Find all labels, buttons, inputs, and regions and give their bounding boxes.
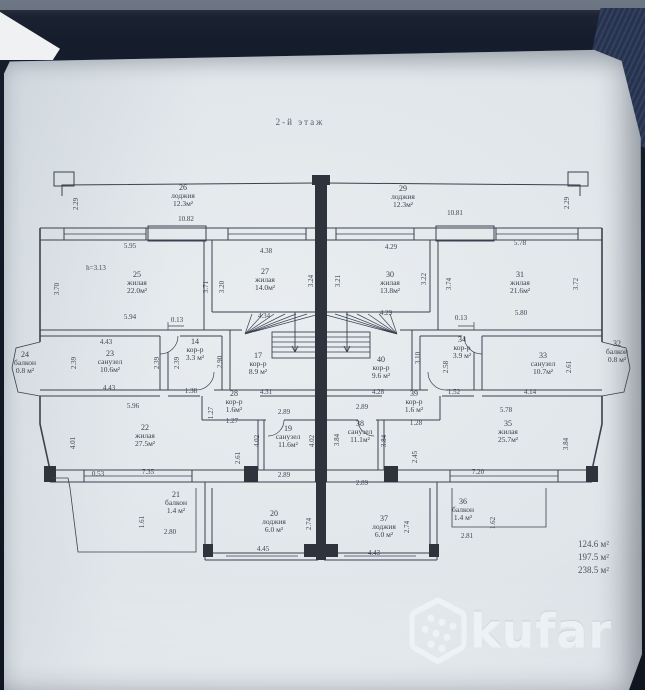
dimension-label: 5.96: [127, 402, 139, 410]
dimension-label: 4.02: [253, 435, 261, 447]
dimension-label: 2.89: [278, 471, 290, 479]
photo-background: 2-й этаж 26лоджия12.3м²29лоджия12.3м²25ж…: [0, 0, 645, 690]
room-area: 12.3м²: [391, 201, 415, 209]
dimension-label: 2.89: [356, 403, 368, 411]
room-label: 31жилая21.6м²: [510, 271, 530, 295]
room-area: 6.0 м²: [372, 531, 396, 539]
dimension-label: 3.10: [414, 352, 422, 364]
room-label: 19санузел11.6м²: [276, 425, 301, 449]
room-area: 22.0м²: [127, 287, 147, 295]
room-area: 1.4 м²: [165, 507, 187, 515]
room-label: 39кор-р1.6 м²: [405, 390, 423, 414]
floor-plan: 2-й этаж 26лоджия12.3м²29лоджия12.3м²25ж…: [0, 0, 645, 690]
dimension-label: 4.38: [260, 247, 272, 255]
dimension-label: 0.53: [92, 470, 104, 478]
dimension-label: 3.84: [380, 435, 388, 447]
total-area-line: 197.5 м²: [578, 551, 609, 564]
dimension-label: 3.74: [445, 278, 453, 290]
room-label: 34кор-р3.9 м²: [453, 336, 471, 360]
dimension-label: 2.89: [278, 408, 290, 416]
room-area: 12.3м²: [171, 200, 195, 208]
dimension-label: 2.80: [164, 528, 176, 536]
dimension-label: 4.29: [385, 243, 397, 251]
dimension-label: 7.35: [142, 468, 154, 476]
dimension-label: 4.28: [372, 388, 384, 396]
room-area: 21.6м²: [510, 287, 530, 295]
room-label: 24балкон0.8 м²: [14, 351, 36, 375]
dimension-label: 2.39: [173, 357, 181, 369]
dimension-label: 1.38: [185, 387, 197, 395]
floor-plan-walls: [0, 0, 645, 690]
dimension-label: 2.29: [72, 198, 80, 210]
dimension-label: 5.95: [124, 242, 136, 250]
room-area: 1.6 м²: [405, 406, 423, 414]
dimension-label: 2.89: [356, 479, 368, 487]
dimension-label: 1.27: [207, 407, 215, 419]
room-area: 11.1м²: [348, 436, 373, 444]
room-area: 9.6 м²: [372, 372, 390, 380]
room-label: 35жилая25.7м²: [498, 420, 518, 444]
dimension-label: 2.81: [461, 532, 473, 540]
dimension-label: 2.61: [565, 361, 573, 373]
dimension-label: 3.84: [333, 434, 341, 446]
dimension-label: 2.61: [234, 452, 242, 464]
dimension-label: 5.94: [124, 313, 136, 321]
room-label: 23санузел10.6м²: [98, 350, 123, 374]
room-area: 13.8м²: [380, 287, 400, 295]
room-area: 10.7м²: [531, 368, 556, 376]
dimension-label: 5.78: [500, 406, 512, 414]
dimension-label: 1.61: [138, 516, 146, 528]
dimension-label: 4.34: [258, 312, 270, 320]
dimension-label: 4.29: [380, 309, 392, 317]
dimension-label: 5.78: [514, 239, 526, 247]
room-area: 10.6м²: [98, 366, 123, 374]
dimension-label: 5.80: [515, 309, 527, 317]
dimension-label: 10.82: [178, 215, 194, 223]
room-label: 29лоджия12.3м²: [391, 185, 415, 209]
room-area: 1.4 м²: [452, 514, 474, 522]
room-label: 38санузел11.1м²: [348, 420, 373, 444]
total-area-line: 238.5 м²: [578, 564, 609, 577]
dimension-label: 4.31: [260, 388, 272, 396]
area-totals: 124.6 м² 197.5 м² 238.5 м²: [578, 538, 609, 577]
room-area: 0.8 м²: [606, 356, 628, 364]
room-label: 20лоджия6.0 м²: [262, 510, 286, 534]
room-area: 1.6м²: [225, 406, 242, 414]
dimension-label: 1.62: [489, 517, 497, 529]
room-label: 27жилая14.0м²: [255, 268, 275, 292]
room-label: 26лоджия12.3м²: [171, 184, 195, 208]
room-label: 37лоджия6.0 м²: [372, 515, 396, 539]
dimension-label: 3.70: [53, 283, 61, 295]
dimension-label: 2.45: [411, 451, 419, 463]
dimension-label: 4.01: [69, 437, 77, 449]
room-area: 3.3 м²: [186, 354, 204, 362]
dimension-label: 4.02: [308, 435, 316, 447]
room-label: 22жилая27.5м²: [135, 424, 155, 448]
room-label: 36балкон1.4 м²: [452, 498, 474, 522]
dimension-label: 4.45: [257, 545, 269, 553]
dimension-label: 10.81: [447, 209, 463, 217]
dimension-label: 3.22: [420, 273, 428, 285]
room-label: 21балкон1.4 м²: [165, 491, 187, 515]
dimension-label: 2.39: [70, 357, 78, 369]
dimension-label: 4.43: [100, 338, 112, 346]
room-area: 14.0м²: [255, 284, 275, 292]
room-area: 6.0 м²: [262, 526, 286, 534]
room-label: 30жилая13.8м²: [380, 271, 400, 295]
total-area-line: 124.6 м²: [578, 538, 609, 551]
room-label: 33санузел10.7м²: [531, 352, 556, 376]
room-area: 27.5м²: [135, 440, 155, 448]
room-label: 25жилая22.0м²: [127, 271, 147, 295]
kufar-wordmark: kufar: [470, 608, 612, 654]
room-area: 25.7м²: [498, 436, 518, 444]
room-label: 14кор-р3.3 м²: [186, 338, 204, 362]
dimension-label: 0.13: [171, 316, 183, 324]
dimension-label: 3.71: [202, 281, 210, 293]
dimension-label: 4.43: [368, 549, 380, 557]
dimension-label: 2.74: [403, 521, 411, 533]
room-label: 40кор-р9.6 м²: [372, 356, 390, 380]
room-area: 3.9 м²: [453, 352, 471, 360]
dimension-label: 7.20: [472, 468, 484, 476]
floor-title: 2-й этаж: [276, 117, 325, 127]
room-area: 8.9 м²: [249, 368, 267, 376]
dimension-label: 3.72: [572, 278, 580, 290]
room-area: 11.6м²: [276, 441, 301, 449]
dimension-label: 2.29: [563, 197, 571, 209]
room-label: 28кор-р1.6м²: [225, 390, 242, 414]
dimension-label: 3.24: [307, 275, 315, 287]
dimension-label: 3.20: [218, 281, 226, 293]
dimension-label: 3.21: [334, 275, 342, 287]
dimension-label: 0.13: [455, 314, 467, 322]
dimension-label: 4.14: [524, 388, 536, 396]
kufar-watermark: kufar: [406, 594, 642, 668]
kufar-hexagon-dots-icon: [406, 596, 470, 666]
dimension-label: h=3.13: [86, 264, 106, 272]
dimension-label: 4.43: [103, 384, 115, 392]
dimension-label: 2.74: [305, 518, 313, 530]
dimension-label: 3.84: [562, 438, 570, 450]
dimension-label: 1.28: [410, 419, 422, 427]
dimension-label: 2.39: [153, 357, 161, 369]
dimension-label: 1.52: [448, 388, 460, 396]
room-label: 17кор-р8.9 м²: [249, 352, 267, 376]
room-label: 32балкон0.8 м²: [606, 340, 628, 364]
room-area: 0.8 м²: [14, 367, 36, 375]
dimension-label: 1.27: [226, 417, 238, 425]
dimension-label: 2.58: [442, 361, 450, 373]
dimension-label: 2.90: [216, 356, 224, 368]
